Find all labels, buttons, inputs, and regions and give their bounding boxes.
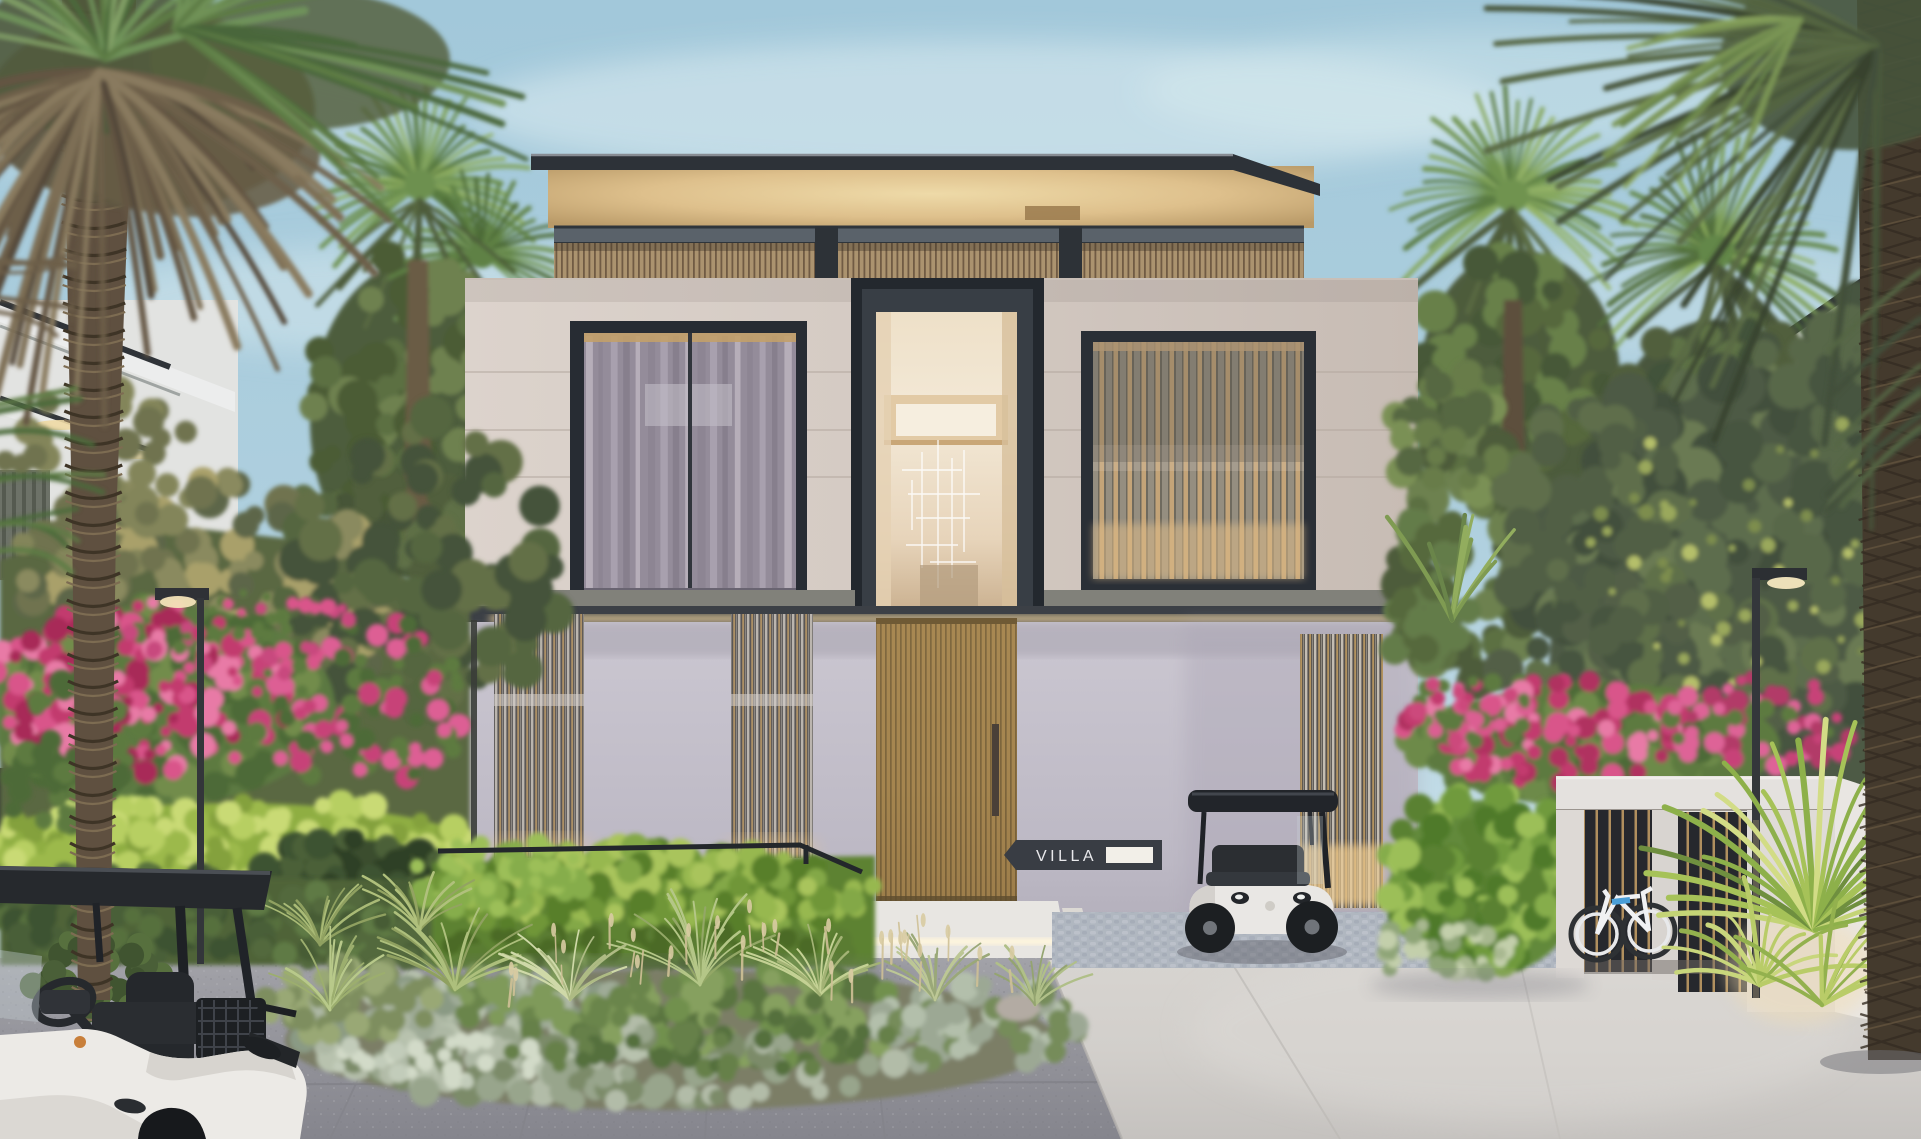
svg-text:VILLA: VILLA (1036, 848, 1097, 865)
